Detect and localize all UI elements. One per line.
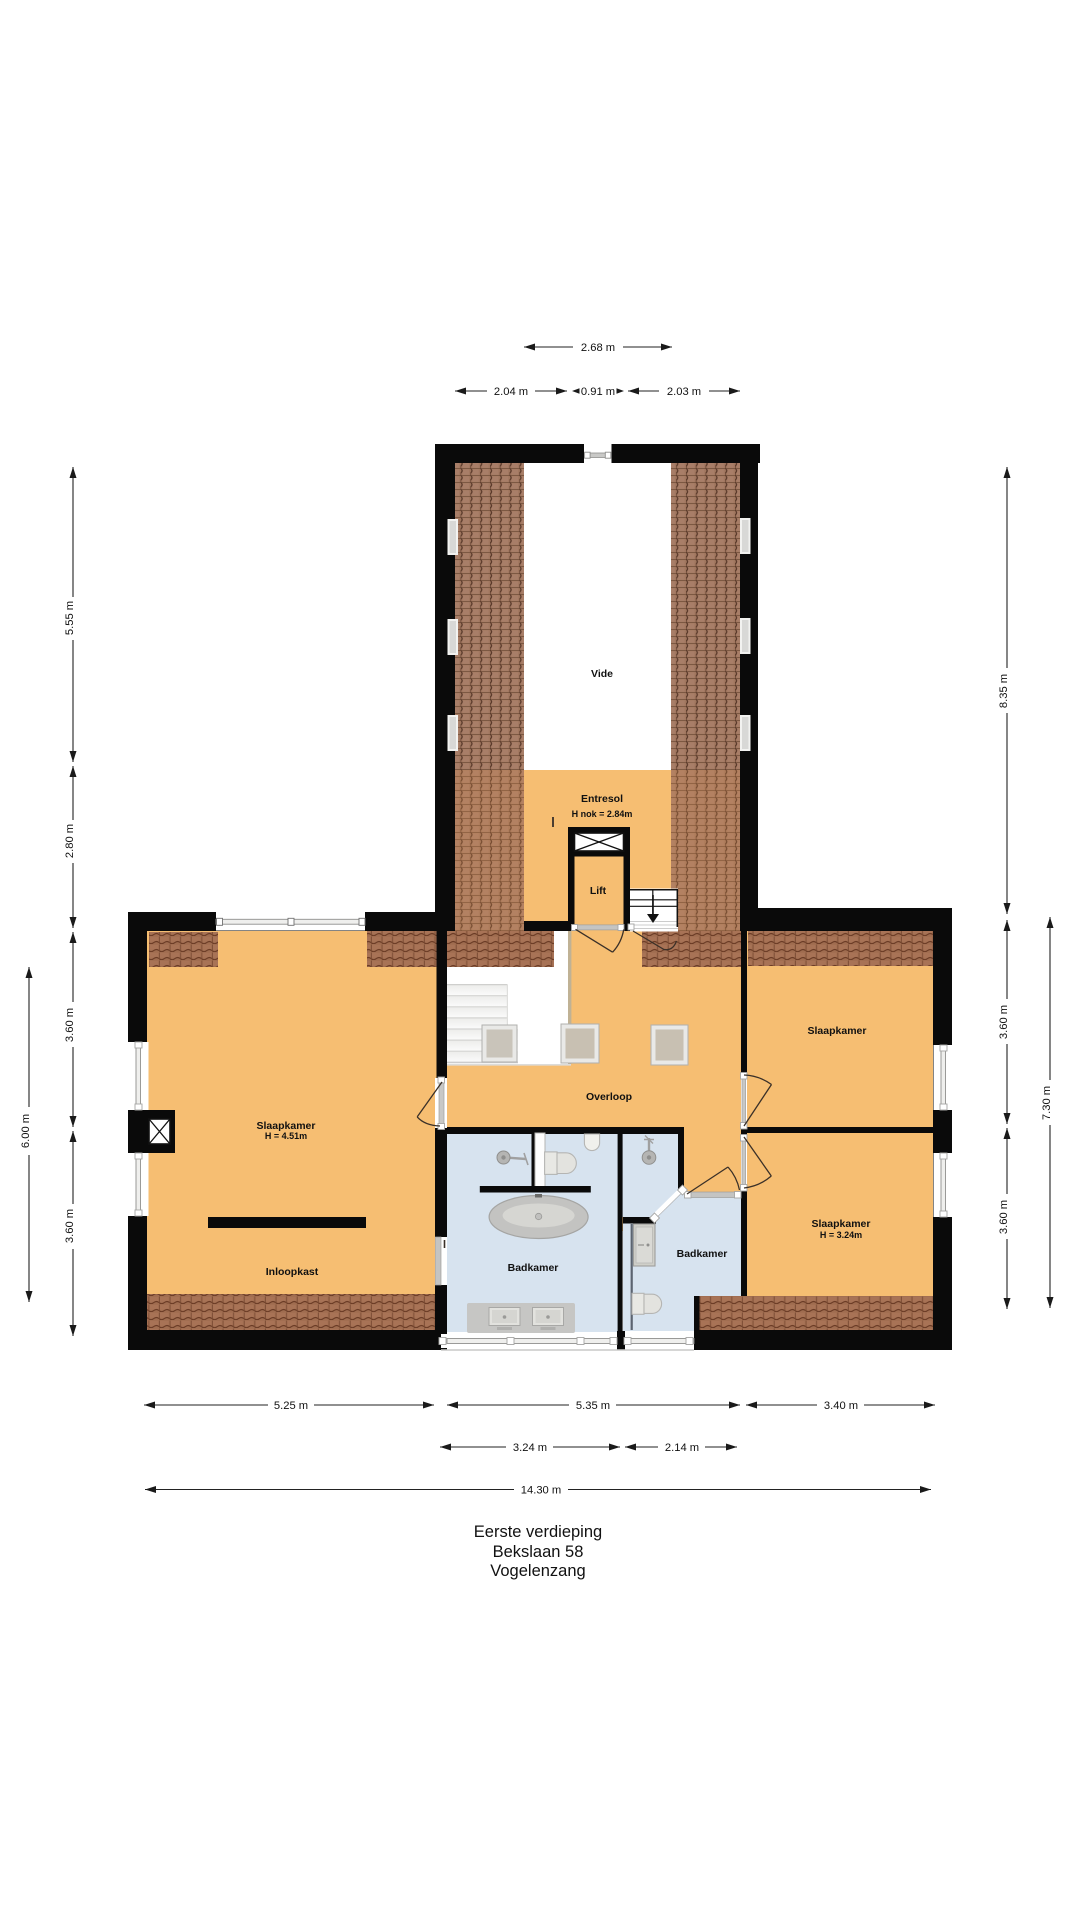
svg-text:5.25 m: 5.25 m [274,1400,308,1412]
svg-text:Slaapkamer: Slaapkamer [808,1025,867,1037]
svg-text:6.00 m: 6.00 m [20,1114,32,1148]
svg-text:3.60 m: 3.60 m [998,1005,1010,1039]
svg-text:5.35 m: 5.35 m [576,1400,610,1412]
svg-text:Eerste verdieping: Eerste verdieping [474,1523,602,1541]
svg-text:H = 4.51m: H = 4.51m [265,1131,307,1141]
svg-text:3.60 m: 3.60 m [64,1209,76,1243]
svg-text:Badkamer: Badkamer [508,1262,559,1274]
svg-text:3.60 m: 3.60 m [64,1008,76,1042]
svg-text:Vide: Vide [591,668,613,680]
svg-text:5.55 m: 5.55 m [64,601,76,635]
svg-text:Bekslaan 58: Bekslaan 58 [493,1543,584,1561]
svg-text:Vogelenzang: Vogelenzang [490,1562,585,1580]
svg-text:3.24 m: 3.24 m [513,1442,547,1454]
svg-text:8.35 m: 8.35 m [998,674,1010,708]
svg-text:H = 3.24m: H = 3.24m [820,1230,862,1240]
svg-text:Overloop: Overloop [586,1091,632,1103]
svg-text:2.80 m: 2.80 m [64,824,76,858]
svg-text:2.04 m: 2.04 m [494,386,528,398]
svg-text:3.40 m: 3.40 m [824,1400,858,1412]
svg-text:Slaapkamer: Slaapkamer [812,1218,871,1230]
svg-text:3.60 m: 3.60 m [998,1200,1010,1234]
svg-text:H nok = 2.84m: H nok = 2.84m [572,809,633,819]
svg-text:14.30 m: 14.30 m [521,1485,561,1497]
svg-text:2.14 m: 2.14 m [665,1442,699,1454]
svg-text:Inloopkast: Inloopkast [266,1266,319,1278]
svg-text:7.30 m: 7.30 m [1041,1086,1053,1120]
svg-text:Badkamer: Badkamer [677,1248,728,1260]
svg-text:0.91 m: 0.91 m [581,386,615,398]
svg-text:Lift: Lift [590,885,607,897]
svg-text:Entresol: Entresol [581,793,623,805]
svg-text:2.68 m: 2.68 m [581,342,615,354]
svg-text:2.03 m: 2.03 m [667,386,701,398]
